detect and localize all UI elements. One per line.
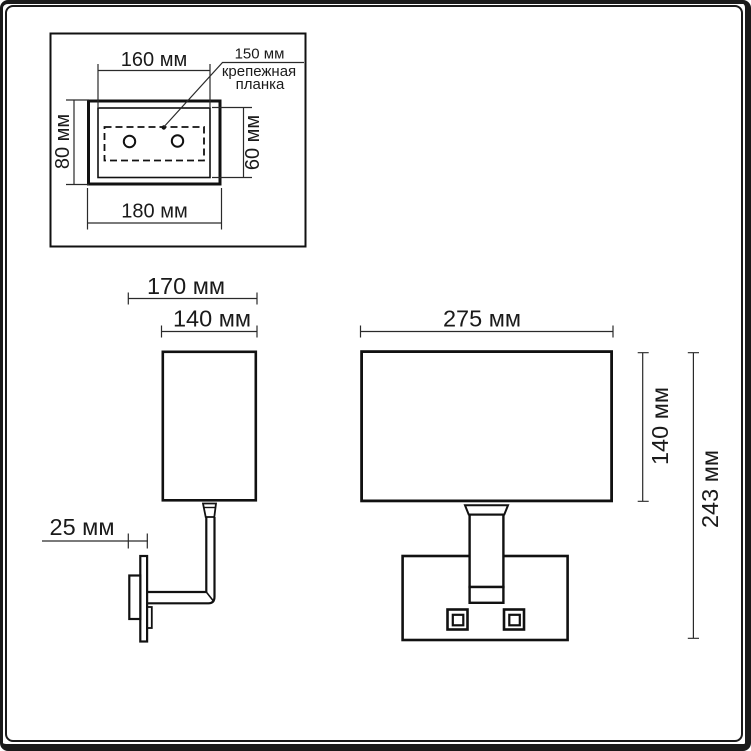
dim-label-170: 170 мм xyxy=(147,273,225,299)
plate-inner-rect xyxy=(98,108,210,178)
wall-plate-tab xyxy=(147,607,152,628)
front-view: 275 мм 140 мм 243 мм xyxy=(361,306,724,641)
mounting-bar-note-line2: планка xyxy=(236,76,285,93)
dim-label-25: 25 мм xyxy=(50,514,115,540)
shade-front-outline xyxy=(362,352,612,501)
stem-front xyxy=(470,515,504,588)
neck-collar-side xyxy=(203,504,216,518)
dim-label-275: 275 мм xyxy=(443,306,521,332)
stem-arm-side xyxy=(148,517,215,603)
wall-block-side xyxy=(129,576,140,620)
side-view: 170 мм 140 мм 25 мм xyxy=(42,273,257,642)
dim-label-150: 150 мм xyxy=(235,46,285,63)
mounting-plate-inset: 160 мм 150 мм крепежная планка 80 мм 60 … xyxy=(51,34,306,247)
dimension-drawing-page: 160 мм 150 мм крепежная планка 80 мм 60 … xyxy=(0,0,751,751)
dim-label-60: 60 мм xyxy=(242,115,264,170)
dim-label-140-front: 140 мм xyxy=(647,387,673,465)
mounting-bar-dashed-rect xyxy=(105,127,205,161)
dim-label-243: 243 мм xyxy=(697,450,723,528)
dim-label-140-side: 140 мм xyxy=(173,306,251,332)
screw-hole-left xyxy=(124,136,135,147)
arm-miter-line xyxy=(206,592,214,602)
dim-label-80: 80 мм xyxy=(52,114,74,169)
technical-drawing-canvas: 160 мм 150 мм крепежная планка 80 мм 60 … xyxy=(0,0,751,751)
dim-label-160: 160 мм xyxy=(121,49,187,71)
plate-outer-rect xyxy=(89,101,221,184)
shade-side-outline xyxy=(163,352,256,501)
stem-cuff-front xyxy=(470,587,504,603)
dim-label-180: 180 мм xyxy=(121,201,187,223)
neck-collar-front xyxy=(465,505,508,514)
screw-hole-right xyxy=(172,135,183,146)
